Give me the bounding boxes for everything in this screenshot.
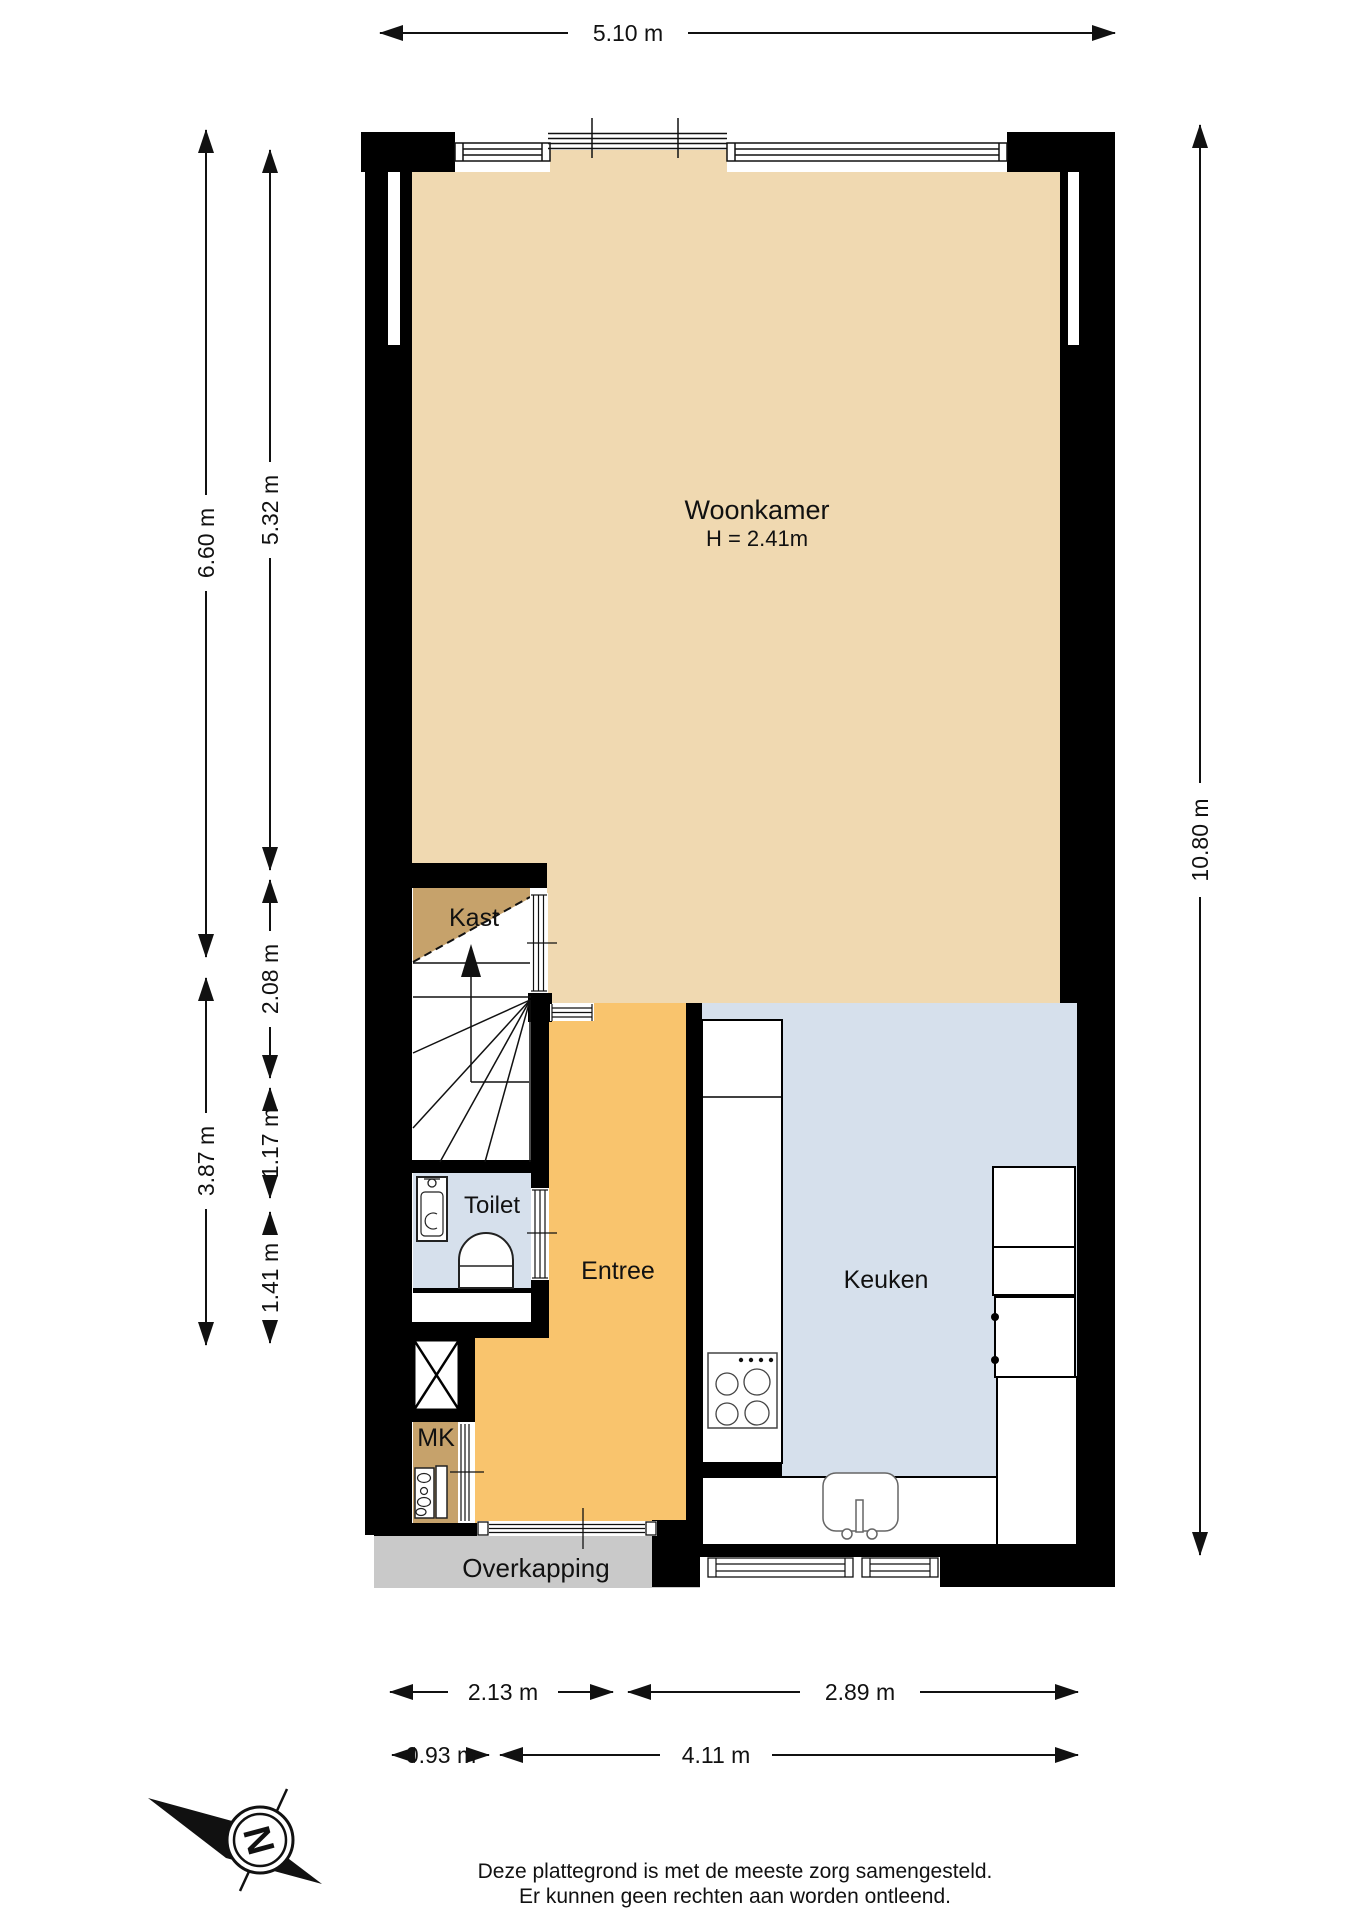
window-left-wall <box>388 172 400 345</box>
wall-kitchen-front-strip <box>700 1545 947 1557</box>
floorplan-page: Woonkamer H = 2.41m Kast Toilet Entree K… <box>0 0 1358 1920</box>
door-cap <box>478 1522 488 1535</box>
wall-kitchen-front-right <box>940 1545 1115 1587</box>
compass-rose: N <box>148 1789 322 1891</box>
wall-stairs-toilet <box>405 1160 547 1173</box>
woonkamer-height-note: H = 2.41m <box>706 526 808 551</box>
dim-label-left-mk: 1.41 m <box>257 1243 283 1313</box>
dim-label-left-upper-outer: 6.60 m <box>193 508 219 578</box>
washbasin <box>417 1177 447 1241</box>
toilet-label: Toilet <box>464 1192 520 1219</box>
dim-label-left-upper-inner: 5.32 m <box>257 475 283 545</box>
cabinet-hinge <box>991 1313 999 1321</box>
cabinet-hinge <box>991 1356 999 1364</box>
footer-line-2: Er kunnen geen rechten aan worden ontlee… <box>519 1885 951 1908</box>
meter-symbol <box>418 1498 431 1507</box>
keuken-label: Keuken <box>844 1266 929 1294</box>
wall-niche-bottom <box>405 1322 549 1338</box>
cabinet-unit <box>993 1247 1075 1295</box>
dim-label-bottom-keuken: 2.89 m <box>825 1679 895 1705</box>
wall-right-lower <box>1077 1003 1115 1587</box>
floorplan-svg: Woonkamer H = 2.41m Kast Toilet Entree K… <box>0 0 1358 1920</box>
wall-counter-stub <box>702 1463 782 1477</box>
kitchen-cabinets-right <box>991 1167 1077 1545</box>
meter-symbol <box>418 1474 431 1483</box>
mk-label: MK <box>417 1424 455 1452</box>
window-top-1 <box>455 143 550 161</box>
cabinet-unit <box>995 1297 1075 1377</box>
meter-symbol <box>416 1509 426 1516</box>
toilet-bowl <box>459 1233 513 1288</box>
stove <box>708 1353 777 1428</box>
entree-label: Entree <box>581 1257 655 1285</box>
window-top-2 <box>727 143 1007 161</box>
dim-label-bottom-porch: 0.93 m <box>406 1742 476 1768</box>
cabinet-unit <box>997 1377 1077 1545</box>
footer-line-1: Deze plattegrond is met de meeste zorg s… <box>478 1860 993 1883</box>
wall-stub-stairglass <box>528 993 552 1022</box>
dim-label-left-toilet: 1.17 m <box>257 1108 283 1178</box>
kitchen-windows-front <box>708 1558 938 1577</box>
door-cap <box>646 1522 656 1535</box>
entree-top-window <box>550 1004 594 1021</box>
dim-label-right-total: 10.80 m <box>1187 798 1213 881</box>
window-right-wall <box>1068 172 1079 345</box>
dim-label-top-width: 5.10 m <box>593 20 663 46</box>
meter-symbol <box>421 1488 428 1495</box>
mk-door-leaf <box>436 1466 447 1518</box>
top-facade <box>455 118 1007 161</box>
overkapping-label: Overkapping <box>462 1553 609 1583</box>
wall-front-entree <box>374 1523 479 1536</box>
dim-label-left-lower-outer: 3.87 m <box>193 1126 219 1196</box>
wall-entree-keuken <box>686 1003 702 1545</box>
woonkamer-label: Woonkamer <box>684 495 829 525</box>
cabinet-unit <box>993 1167 1075 1247</box>
kast-label: Kast <box>449 904 499 932</box>
footer-disclaimer: Deze plattegrond is met de meeste zorg s… <box>478 1860 993 1908</box>
kitchen-sink <box>823 1473 898 1539</box>
shaft-duct <box>414 1340 459 1410</box>
wall-kast-top <box>405 863 547 888</box>
dim-label-bottom-facade: 4.11 m <box>682 1742 751 1768</box>
dim-label-bottom-entree: 2.13 m <box>468 1679 538 1705</box>
dim-label-left-stairs: 2.08 m <box>257 944 283 1014</box>
